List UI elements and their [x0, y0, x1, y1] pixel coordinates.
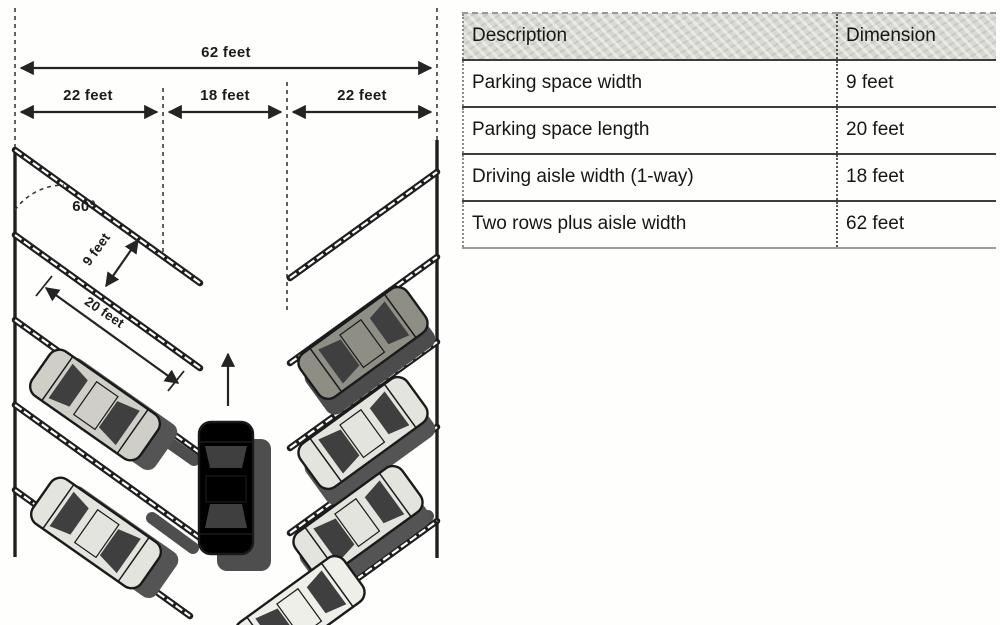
space-width-label: 9 feet [80, 230, 114, 269]
column-header-description: Description [463, 13, 837, 60]
parking-dimensions-table: Description Dimension Parking space widt… [462, 12, 996, 249]
table-row: Driving aisle width (1-way) 18 feet [463, 154, 996, 201]
column-header-dimension: Dimension [837, 13, 996, 60]
parking-layout-diagram: 62 feet 22 feet 18 feet 22 feet [0, 0, 460, 625]
angle-label: 60° [72, 198, 96, 215]
aisle-width-label: 18 feet [200, 87, 250, 104]
total-width-label: 62 feet [201, 44, 251, 61]
space-width-dimension-line [106, 240, 138, 286]
table-row: Two rows plus aisle width 62 feet [463, 201, 996, 248]
table-header-row: Description Dimension [463, 13, 996, 60]
parked-car [25, 345, 181, 474]
scanned-page: 62 feet 22 feet 18 feet 22 feet [0, 0, 1000, 625]
description-cell: Driving aisle width (1-way) [463, 154, 837, 201]
left-row-width-label: 22 feet [63, 87, 113, 104]
description-cell: Parking space width [463, 60, 837, 107]
right-row-width-label: 22 feet [337, 87, 387, 104]
angle-arc [15, 185, 64, 210]
dimension-cell: 20 feet [837, 107, 996, 154]
description-cell: Two rows plus aisle width [463, 201, 837, 248]
driving-car [199, 422, 271, 571]
dimension-cell: 9 feet [837, 60, 996, 107]
table-row: Parking space width 9 feet [463, 60, 996, 107]
parked-car [26, 473, 182, 602]
description-cell: Parking space length [463, 107, 837, 154]
dimension-cell: 62 feet [837, 201, 996, 248]
dimension-cell: 18 feet [837, 154, 996, 201]
table-row: Parking space length 20 feet [463, 107, 996, 154]
